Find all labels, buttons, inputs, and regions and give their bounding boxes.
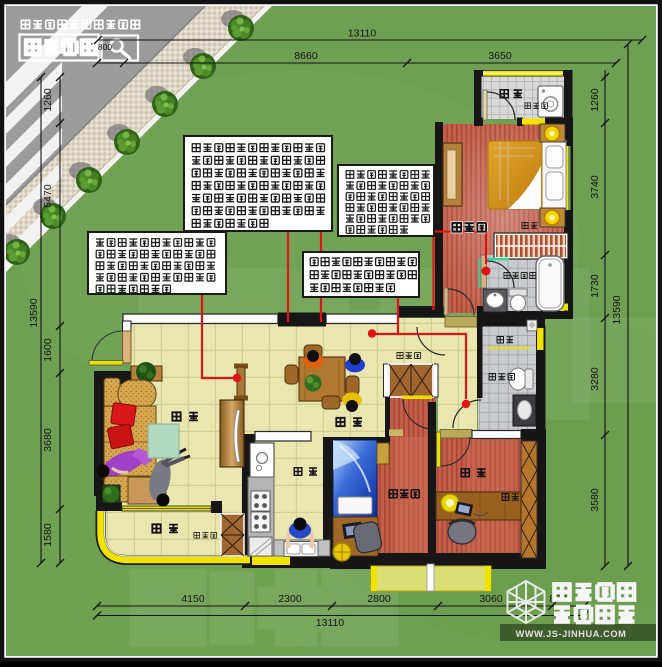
svg-text:3280: 3280 [589,367,601,391]
svg-text:2800: 2800 [367,593,391,605]
svg-text:1260: 1260 [42,88,54,112]
svg-text:3060: 3060 [479,593,503,605]
svg-text:13590: 13590 [611,295,623,324]
svg-text:3650: 3650 [488,50,512,62]
svg-text:4150: 4150 [181,593,205,605]
svg-text:1260: 1260 [589,88,601,112]
svg-text:2300: 2300 [278,593,302,605]
svg-text:13110: 13110 [348,28,377,40]
svg-text:3580: 3580 [589,488,601,512]
svg-text:800: 800 [98,42,112,52]
svg-text:5470: 5470 [42,184,54,208]
svg-text:1580: 1580 [42,523,54,547]
svg-text:13590: 13590 [28,298,40,327]
svg-text:3740: 3740 [589,175,601,199]
svg-text:WWW.JS-JINHUA.COM: WWW.JS-JINHUA.COM [516,629,627,639]
svg-text:13110: 13110 [316,617,345,629]
svg-text:1600: 1600 [42,338,54,362]
svg-text:1730: 1730 [589,274,601,298]
svg-text:8660: 8660 [294,50,318,62]
svg-text:3680: 3680 [42,428,54,452]
